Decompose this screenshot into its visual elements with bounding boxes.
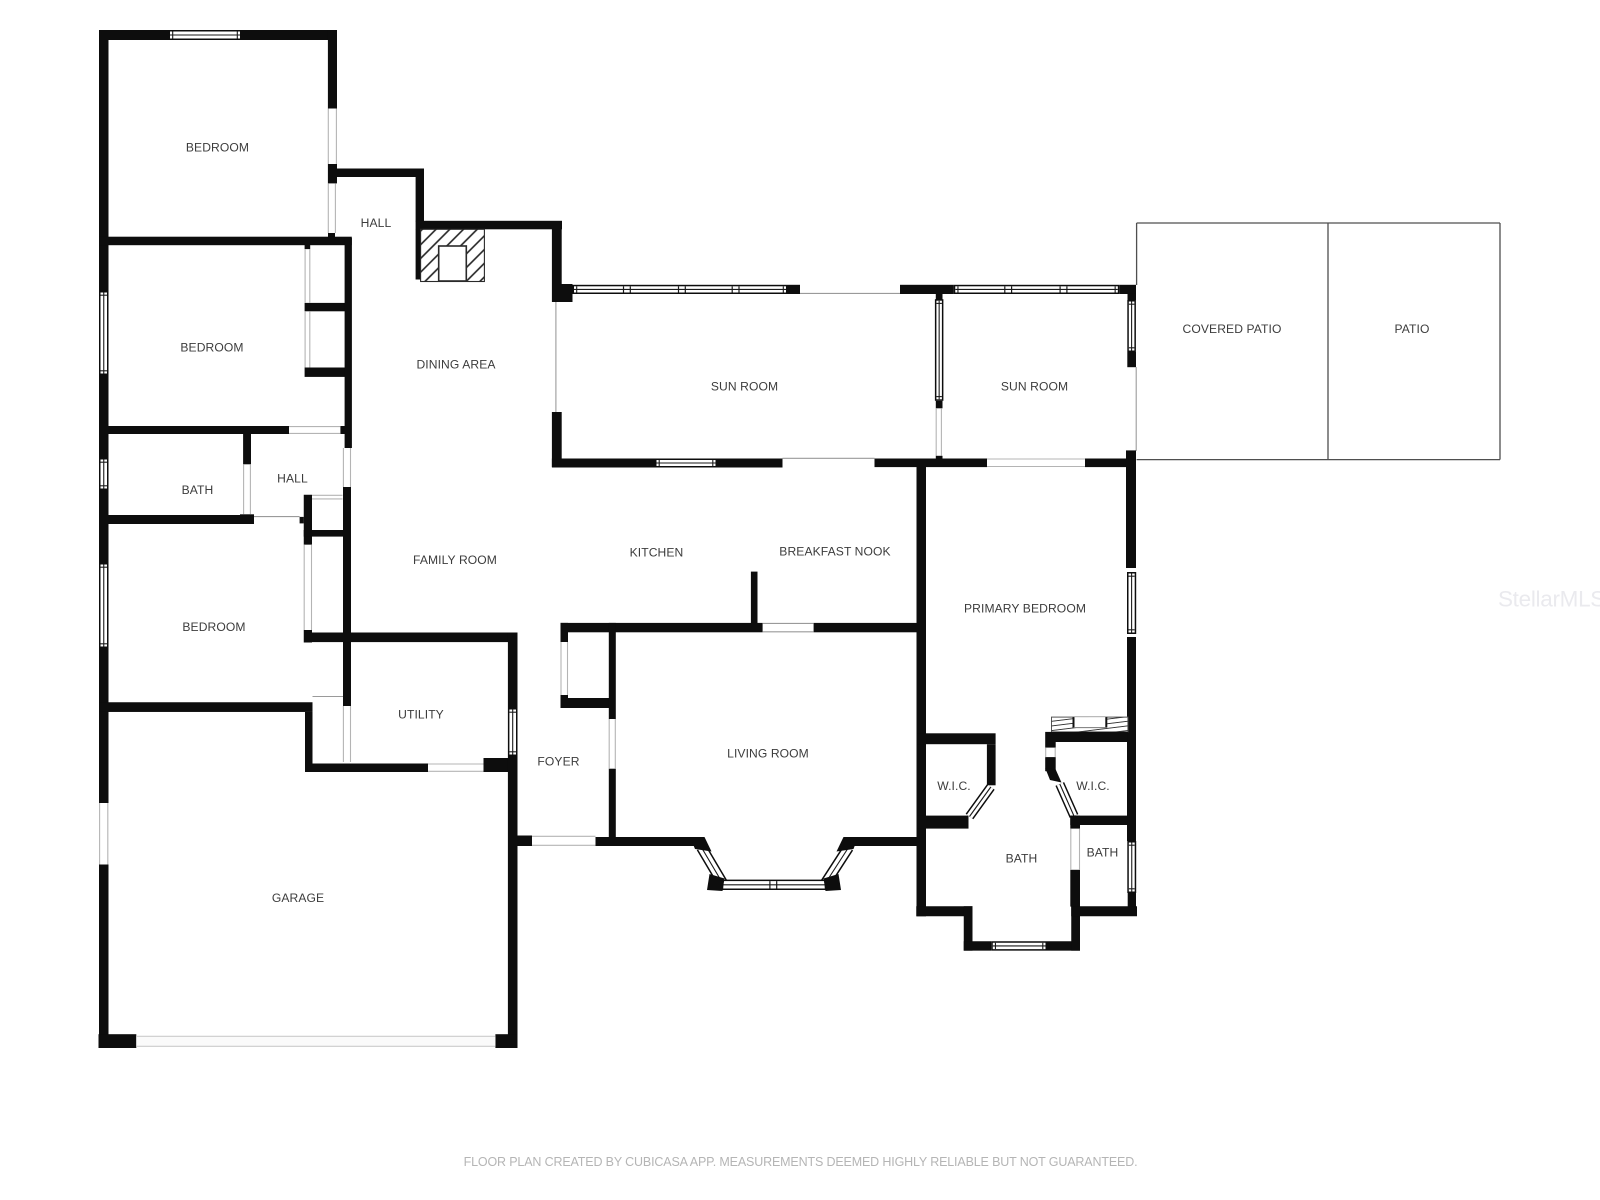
svg-text:BEDROOM: BEDROOM xyxy=(180,341,243,355)
svg-text:COVERED PATIO: COVERED PATIO xyxy=(1183,322,1282,336)
svg-text:BEDROOM: BEDROOM xyxy=(182,620,245,634)
svg-text:FAMILY ROOM: FAMILY ROOM xyxy=(413,553,497,567)
svg-text:FOYER: FOYER xyxy=(537,755,579,769)
svg-text:BATH: BATH xyxy=(182,483,214,497)
svg-text:SUN ROOM: SUN ROOM xyxy=(711,380,778,394)
svg-text:KITCHEN: KITCHEN xyxy=(630,546,684,560)
svg-text:PRIMARY BEDROOM: PRIMARY BEDROOM xyxy=(964,602,1086,616)
svg-text:HALL: HALL xyxy=(361,216,392,230)
svg-text:LIVING ROOM: LIVING ROOM xyxy=(727,747,809,761)
svg-text:PATIO: PATIO xyxy=(1395,322,1430,336)
svg-text:W.I.C.: W.I.C. xyxy=(1076,779,1110,793)
svg-text:GARAGE: GARAGE xyxy=(272,891,324,905)
svg-text:DINING AREA: DINING AREA xyxy=(416,358,496,372)
svg-text:W.I.C.: W.I.C. xyxy=(937,779,971,793)
svg-text:BEDROOM: BEDROOM xyxy=(186,141,249,155)
svg-text:HALL: HALL xyxy=(277,472,308,486)
svg-text:BATH: BATH xyxy=(1006,852,1038,866)
svg-text:SUN ROOM: SUN ROOM xyxy=(1001,380,1068,394)
svg-text:StellarMLS: StellarMLS xyxy=(1498,586,1600,611)
svg-text:BATH: BATH xyxy=(1087,846,1119,860)
svg-text:FLOOR PLAN CREATED BY CUBICASA: FLOOR PLAN CREATED BY CUBICASA APP. MEAS… xyxy=(464,1155,1138,1169)
svg-text:UTILITY: UTILITY xyxy=(398,708,444,722)
svg-text:BREAKFAST NOOK: BREAKFAST NOOK xyxy=(779,545,890,559)
